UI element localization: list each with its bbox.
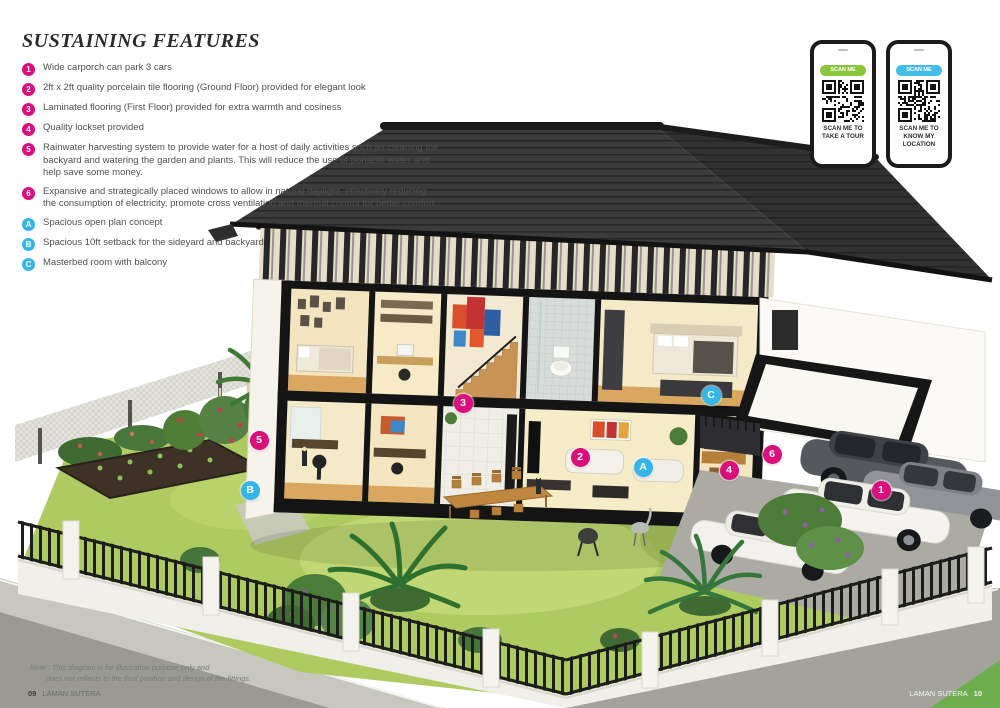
disclaimer-line-1: Note : This diagram is for illustration … — [30, 663, 251, 674]
feature-item-3: 3Laminated flooring (First Floor) provid… — [22, 102, 440, 116]
feature-item-B: BSpacious 10ft setback for the sideyard … — [22, 237, 440, 251]
qr-caption-tour: SCAN ME TOTAKE A TOUR — [822, 125, 864, 141]
feature-badge-4: 4 — [22, 123, 35, 136]
feature-text-4: Quality lockset provided — [43, 122, 144, 135]
feature-badge-5: 5 — [22, 143, 35, 156]
map-marker-5: 5 — [250, 431, 269, 450]
feature-text-A: Spacious open plan concept — [43, 217, 162, 230]
feature-text-2: 2ft x 2ft quality porcelain tile floorin… — [43, 82, 366, 95]
feature-item-5: 5Rainwater harvesting system to provide … — [22, 142, 440, 180]
qr-code-location-icon — [898, 80, 940, 122]
disclaimer-note: Note : This diagram is for illustration … — [30, 663, 251, 685]
qr-caption-location: SCAN ME TOKNOW MYLOCATION — [899, 125, 938, 150]
project-name-left: LAMAN SUTERA — [42, 689, 100, 698]
map-marker-6: 6 — [763, 445, 782, 464]
feature-text-C: Masterbed room with balcony — [43, 257, 167, 270]
feature-item-C: CMasterbed room with balcony — [22, 257, 440, 271]
map-marker-B: B — [241, 481, 260, 500]
scan-me-badge-location: SCAN ME — [896, 65, 942, 76]
feature-item-2: 22ft x 2ft quality porcelain tile floori… — [22, 82, 440, 96]
phone-speaker — [838, 49, 848, 51]
map-marker-A: A — [634, 458, 653, 477]
phone-frame-tour: SCAN ME SCAN ME TOTAKE A TOUR — [810, 40, 876, 168]
phone-speaker — [914, 49, 924, 51]
feature-badge-6: 6 — [22, 187, 35, 200]
project-name-right: LAMAN SUTERA — [909, 689, 967, 698]
footer-right: LAMAN SUTERA 10 — [909, 689, 982, 698]
disclaimer-line-2: does not reflects to the final position … — [30, 674, 251, 685]
feature-badge-1: 1 — [22, 63, 35, 76]
feature-badge-A: A — [22, 218, 35, 231]
page-number-left: 09 — [28, 689, 36, 698]
map-marker-3: 3 — [454, 394, 473, 413]
footer-left: 09 LAMAN SUTERA — [28, 689, 101, 698]
feature-item-1: 1Wide carporch can park 3 cars — [22, 62, 440, 76]
features-list: 1Wide carporch can park 3 cars22ft x 2ft… — [22, 62, 440, 277]
feature-item-4: 4Quality lockset provided — [22, 122, 440, 136]
feature-badge-C: C — [22, 258, 35, 271]
map-marker-1: 1 — [872, 481, 891, 500]
feature-badge-2: 2 — [22, 83, 35, 96]
feature-text-B: Spacious 10ft setback for the sideyard a… — [43, 237, 264, 250]
feature-item-6: 6Expansive and strategically placed wind… — [22, 186, 440, 211]
feature-text-5: Rainwater harvesting system to provide w… — [43, 142, 440, 180]
qr-code-tour-icon — [822, 80, 864, 122]
feature-badge-3: 3 — [22, 103, 35, 116]
brochure-page: SUSTAINING FEATURES 1Wide carporch can p… — [0, 0, 1000, 708]
phone-frame-location: SCAN ME SCAN ME TOKNOW MYLOCATION — [886, 40, 952, 168]
feature-badge-B: B — [22, 238, 35, 251]
feature-text-1: Wide carporch can park 3 cars — [43, 62, 172, 75]
feature-text-3: Laminated flooring (First Floor) provide… — [43, 102, 341, 115]
page-number-right: 10 — [974, 689, 982, 698]
map-marker-2: 2 — [571, 448, 590, 467]
scan-me-badge-tour: SCAN ME — [820, 65, 866, 76]
map-marker-C: C — [702, 386, 721, 405]
feature-item-A: ASpacious open plan concept — [22, 217, 440, 231]
feature-text-6: Expansive and strategically placed windo… — [43, 186, 440, 211]
map-marker-4: 4 — [720, 461, 739, 480]
